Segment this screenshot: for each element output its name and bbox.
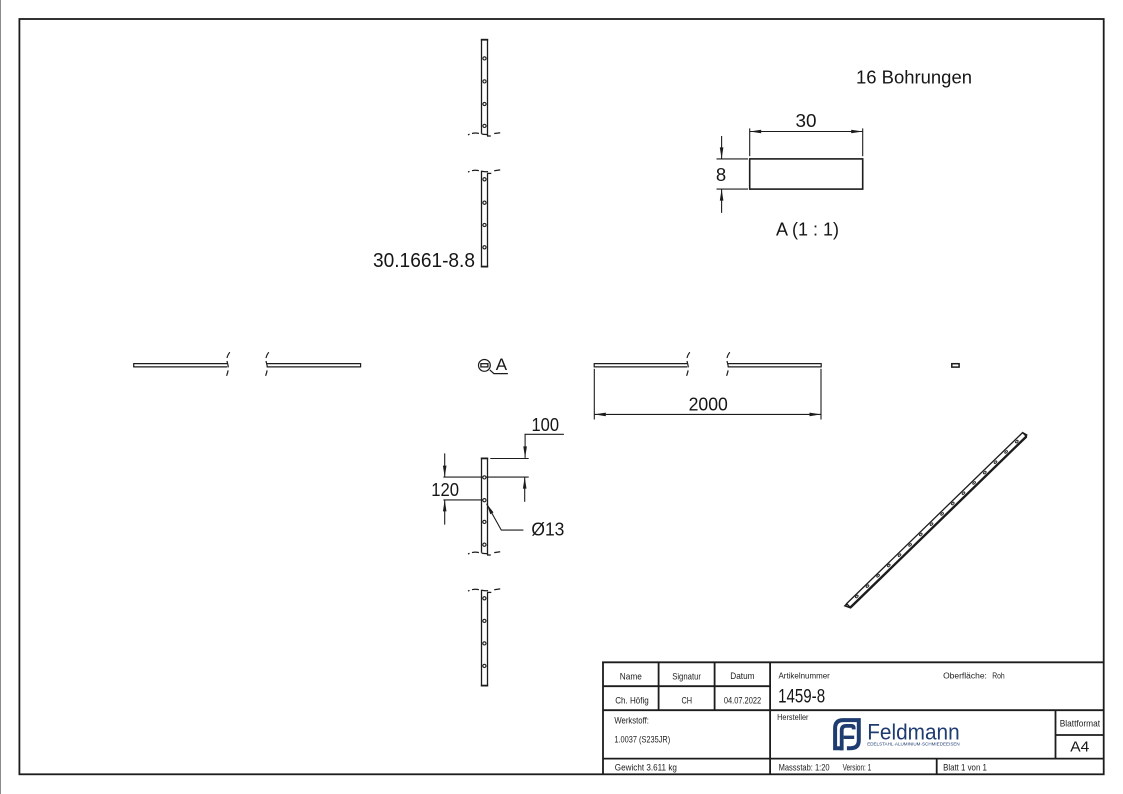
svg-text:120: 120: [431, 479, 459, 500]
svg-text:1459-8: 1459-8: [778, 687, 825, 708]
svg-text:Roh: Roh: [992, 671, 1005, 680]
svg-text:CH: CH: [682, 695, 693, 705]
svg-text:Ch. Höfig: Ch. Höfig: [615, 695, 649, 705]
svg-text:Massstab: 1:20: Massstab: 1:20: [779, 763, 830, 773]
svg-text:A4: A4: [1070, 739, 1089, 756]
svg-text:Datum: Datum: [730, 671, 755, 681]
svg-text:Blattformat: Blattformat: [1060, 718, 1101, 728]
svg-text:8: 8: [716, 164, 726, 185]
svg-text:A (1 : 1): A (1 : 1): [776, 220, 839, 240]
svg-text:30.1661-8.8: 30.1661-8.8: [373, 250, 475, 272]
svg-text:A: A: [496, 355, 508, 374]
svg-text:Oberfläche:: Oberfläche:: [943, 671, 987, 680]
svg-text:Gewicht 3.611 kg: Gewicht 3.611 kg: [615, 762, 677, 772]
svg-text:Signatur: Signatur: [672, 671, 701, 681]
svg-text:Blatt 1 von 1: Blatt 1 von 1: [943, 763, 987, 773]
svg-text:Hersteller: Hersteller: [777, 713, 809, 722]
svg-text:1.0037 (S235JR): 1.0037 (S235JR): [614, 734, 670, 744]
svg-text:30: 30: [796, 110, 817, 131]
svg-text:04.07.2022: 04.07.2022: [724, 695, 761, 705]
svg-text:Ø13: Ø13: [531, 519, 564, 540]
svg-text:Feldmann: Feldmann: [867, 719, 960, 744]
svg-text:Artikelnummer: Artikelnummer: [779, 671, 831, 680]
svg-text:16 Bohrungen: 16 Bohrungen: [856, 67, 972, 88]
svg-text:Werkstoff:: Werkstoff:: [614, 715, 649, 725]
svg-text:Name: Name: [620, 671, 642, 681]
svg-text:Version: 1: Version: 1: [843, 763, 872, 773]
svg-text:2000: 2000: [689, 394, 728, 415]
svg-text:EDELSTAHL·ALUMINIUM·SCHMIEDEEI: EDELSTAHL·ALUMINIUM·SCHMIEDEEISEN: [867, 741, 960, 747]
svg-text:100: 100: [532, 414, 560, 435]
